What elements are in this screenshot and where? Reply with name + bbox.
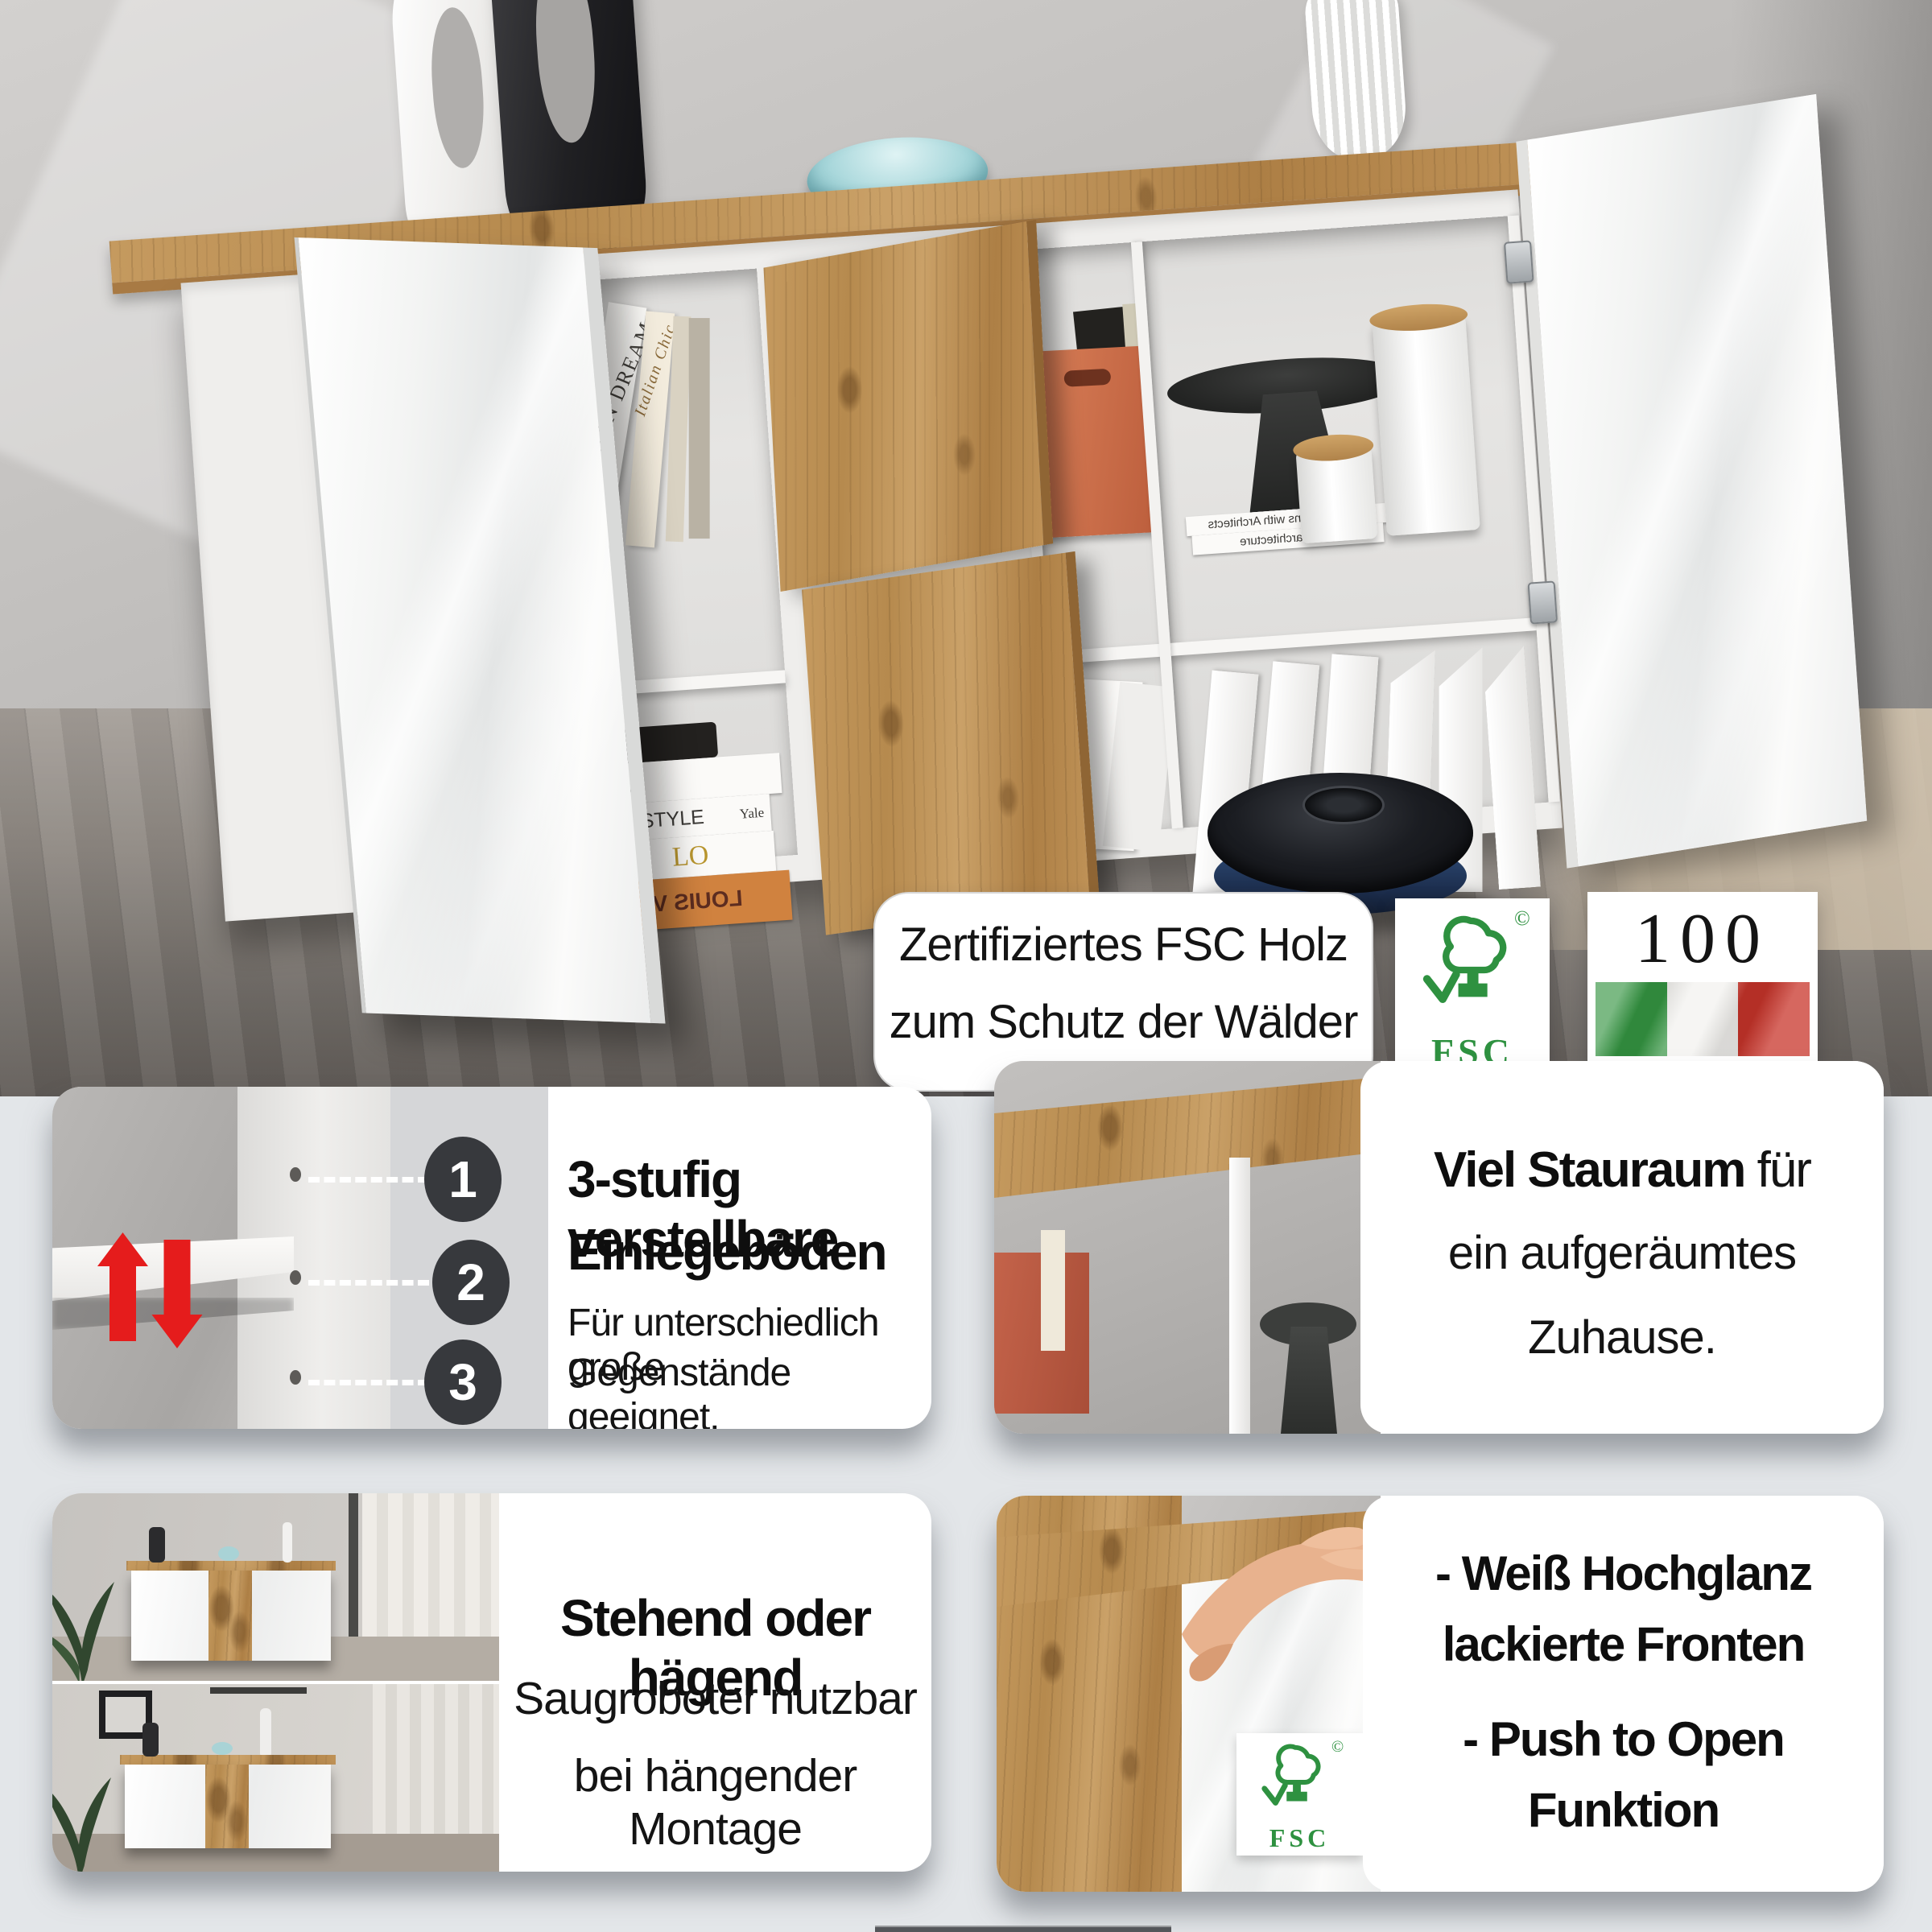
oak-door-upper [763, 220, 1053, 592]
storage-title: Viel Stauraum für [1360, 1141, 1884, 1199]
oak-door-lower [802, 551, 1099, 935]
vase-hole [530, 0, 600, 145]
standing-scene-photo [52, 1684, 499, 1872]
storage-line2: ein aufgeräumtes [1360, 1226, 1884, 1280]
dashed-connector [308, 1177, 429, 1183]
mini-cabinet-hanging [131, 1571, 331, 1661]
storage-text-card: Viel Stauraum für ein aufgeräumtes Zuhau… [1360, 1061, 1884, 1434]
panel-storage: Viel Stauraum für ein aufgeräumtes Zuhau… [994, 1061, 1884, 1434]
storage-title-rest: für [1744, 1142, 1810, 1198]
file-holder [1482, 646, 1541, 890]
feature1-line1: - Weiß Hochglanz [1363, 1546, 1884, 1601]
mini-cabinet-standing [125, 1765, 331, 1848]
storage-photo [994, 1061, 1381, 1434]
hero-photo: ITALIAN DREAM Italian Chic L STYLE Yale … [0, 0, 1932, 1096]
dried-plant-vase [260, 1708, 271, 1758]
decor-bowl [218, 1546, 239, 1561]
fsc-copyright: © [1514, 906, 1530, 931]
book-spine [689, 318, 710, 539]
mounting-line3: bei hängender Montage [499, 1749, 931, 1856]
white-divider [1229, 1158, 1250, 1434]
panel-adjustable-shelves: 1 2 3 3-stufig verstellbare Einlegeböden… [52, 1087, 931, 1429]
mini-cabinet-oak-stripe [208, 1571, 252, 1661]
fsc-tree-icon [1418, 910, 1530, 1030]
step-circle-2: 2 [432, 1240, 510, 1325]
italy-flag [1596, 982, 1810, 1056]
dashed-connector [308, 1280, 429, 1286]
orange-file-box [1034, 346, 1153, 539]
vase-hole [427, 6, 489, 170]
door-hinge [1528, 580, 1558, 624]
frame-inner [105, 1697, 146, 1732]
bottom-bar [875, 1926, 1171, 1932]
peg-hole [290, 1270, 301, 1285]
compartment-binders: Conversations with Architects arts e arc… [1142, 216, 1549, 828]
decor-bottle [149, 1527, 165, 1563]
mounting-line2: Saugroboter nutzbar [499, 1672, 931, 1725]
feature1-line2: lackierte Fronten [1363, 1616, 1884, 1672]
adjust-arrows-icon [93, 1230, 213, 1351]
step-circle-3: 3 [424, 1340, 502, 1425]
stacked-book-publisher: Yale [738, 795, 766, 833]
fsc-photo-badge: © FSC [1236, 1733, 1363, 1856]
hanging-scene-photo [52, 1493, 499, 1681]
fsc-copyright: © [1331, 1738, 1344, 1757]
fsc-certification-badge: © FSC [1395, 898, 1550, 1080]
decor-bowl [212, 1742, 233, 1755]
ribbed-white-vase [1303, 0, 1409, 162]
canister-lid [1368, 301, 1468, 333]
stacked-book-title: STYLE [640, 806, 705, 832]
features-text-card: - Weiß Hochglanz lackierte Fronten - Pus… [1363, 1496, 1884, 1892]
canister-large [1372, 314, 1480, 535]
product-infographic: ITALIAN DREAM Italian Chic L STYLE Yale … [0, 0, 1932, 1932]
shelf-photo [52, 1087, 390, 1429]
canister-small [1295, 445, 1377, 543]
fsc-wordmark: FSC [1236, 1823, 1363, 1853]
flag-shading [1596, 982, 1810, 1056]
badge-line2: zum Schutz der Wälder [875, 984, 1372, 1061]
storage-line3: Zuhause. [1360, 1311, 1884, 1364]
wall-shelf [210, 1687, 307, 1694]
hand-icon [1162, 1509, 1381, 1694]
panel-mounting: Stehend oder hägend Saugroboter nutzbar … [52, 1493, 931, 1872]
fsc-tree-icon [1257, 1740, 1338, 1825]
box-handle-hole [1063, 369, 1111, 387]
badge-line1: Zertifiziertes FSC Holz [875, 906, 1372, 984]
decor-vase [283, 1522, 292, 1563]
decor-bottle [142, 1723, 159, 1757]
panel-title-line2: Einlegeböden [568, 1222, 886, 1282]
right-door-open [1516, 94, 1867, 869]
plant-icon [52, 1761, 123, 1872]
plant-icon [52, 1566, 126, 1681]
robot-turret [1302, 786, 1385, 824]
door-gloss [1527, 94, 1867, 867]
peg-hole [290, 1167, 301, 1182]
wood-top-underside [994, 1077, 1381, 1198]
scene-divider [52, 1681, 499, 1684]
features-photo: © FSC [997, 1496, 1381, 1892]
peg-hole [290, 1370, 301, 1385]
panel-features: © FSC - Weiß Hochglanz lackierte Fronten… [997, 1496, 1884, 1892]
feature2-line1: - Push to Open [1363, 1711, 1884, 1767]
dashed-connector [308, 1380, 429, 1385]
feature2-line2: Funktion [1363, 1782, 1884, 1838]
step-circle-1: 1 [424, 1137, 502, 1222]
mini-cabinet-oak-stripe [205, 1765, 249, 1848]
door-hinge [1504, 240, 1534, 283]
white-book [1041, 1230, 1065, 1351]
panel-body-line2: Gegenstände geeignet. [568, 1351, 931, 1429]
storage-title-bold: Viel Stauraum [1434, 1142, 1744, 1198]
